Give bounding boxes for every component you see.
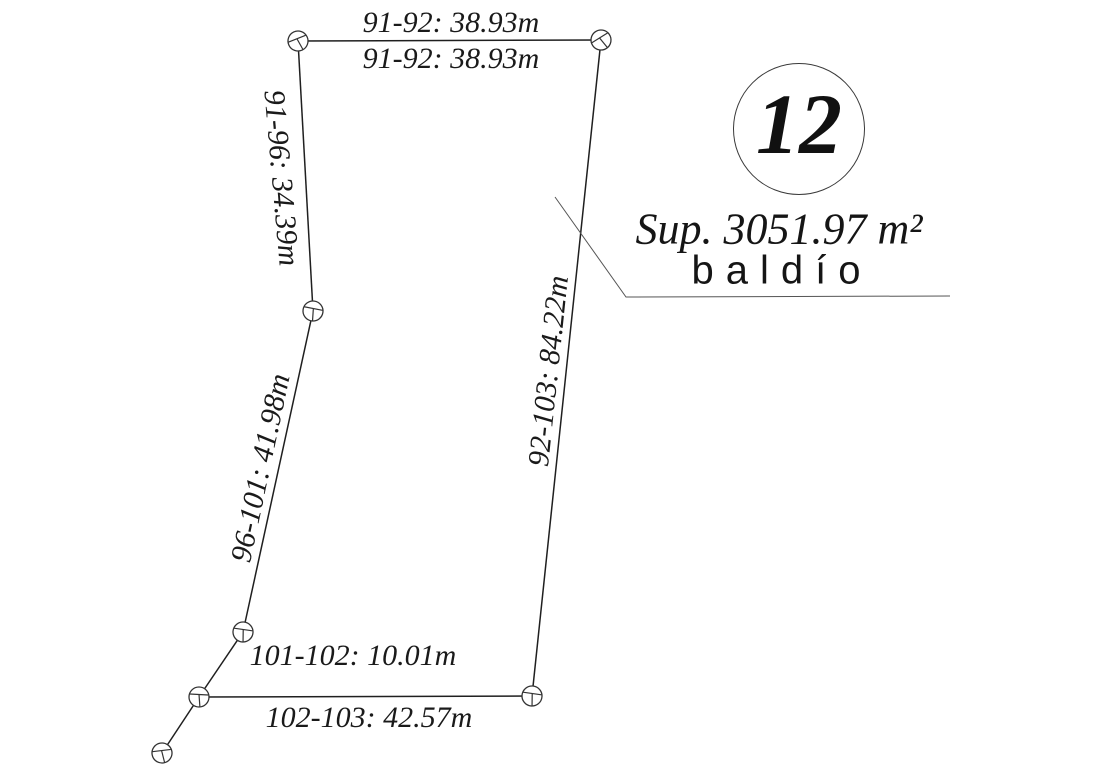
boundary-edge-91-92 xyxy=(298,40,601,41)
parcel-area-label: Sup. 3051.97 m² xyxy=(636,204,923,255)
edge-length-label: 91-92: 38.93m xyxy=(363,8,540,38)
parcel-number-circle: 12 xyxy=(733,63,865,195)
boundary-edge-96-91 xyxy=(298,41,313,311)
parcel-number: 12 xyxy=(756,81,842,177)
land-use-label: baldío xyxy=(692,249,873,294)
survey-point-marker-102 xyxy=(189,687,209,707)
edge-length-label: 101-102: 10.01m xyxy=(250,641,457,671)
boundary-edge-103-102 xyxy=(199,696,532,697)
survey-point-marker-96 xyxy=(302,300,325,323)
survey-point-marker-92 xyxy=(587,26,615,54)
survey-plan-canvas: 91-92: 38.93m91-92: 38.93m91-96: 34.39m9… xyxy=(0,0,1100,777)
survey-point-marker-103 xyxy=(521,685,543,707)
edge-length-label: 91-92: 38.93m xyxy=(363,44,540,74)
survey-point-marker-aux-sw xyxy=(150,741,173,764)
survey-point-marker-91 xyxy=(285,28,312,55)
boundary-edge-102-101 xyxy=(199,632,243,697)
edge-length-label: 102-103: 42.57m xyxy=(266,703,473,733)
